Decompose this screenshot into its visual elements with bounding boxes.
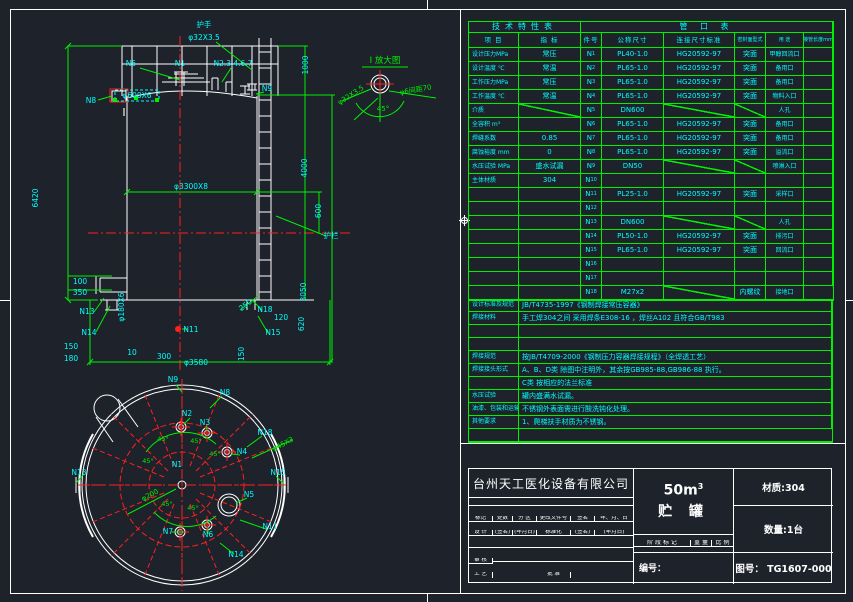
dim-total-height: 6420 bbox=[31, 188, 40, 207]
tech-item-label: 焊缝系数 bbox=[469, 132, 519, 146]
dim-200: φ200 bbox=[140, 487, 160, 503]
stage-mark-label: 阶 段 标 记 bbox=[634, 540, 691, 547]
titleblock-cell: (年月日) bbox=[513, 530, 537, 537]
nozzle-size: PL65-1.0 bbox=[602, 146, 664, 160]
note-text bbox=[519, 325, 832, 338]
note-text: C类 按相应的法兰标准 bbox=[519, 377, 832, 390]
grip-handle[interactable] bbox=[113, 98, 117, 102]
nozzle-use: 备用口 bbox=[766, 62, 804, 76]
note-text: A、B、D类 除图中注明外，其余按GB985-88,GB986-88 执行。 bbox=[519, 364, 832, 377]
detail-angle: 45° bbox=[377, 105, 389, 113]
label-n18-front: N18 bbox=[257, 305, 272, 314]
label-n1-front: N1 bbox=[175, 59, 186, 68]
titleblock-cell: 工 艺 bbox=[469, 572, 493, 578]
label-n8-front: N8 bbox=[86, 96, 97, 105]
tech-item-value: 0.85 bbox=[519, 132, 581, 146]
nozzle-no: N4 bbox=[581, 90, 602, 104]
label-guardrail: 护栏 bbox=[324, 230, 339, 240]
dim-bottom-dia: φ3580 bbox=[184, 358, 208, 367]
note-text: JB/T4735-1997《钢制焊接常压容器》 bbox=[519, 299, 832, 312]
nozzle-face bbox=[735, 272, 766, 286]
nozzle-length bbox=[804, 48, 833, 62]
nozzle-no: N10 bbox=[581, 174, 602, 188]
nozzle-header-4: 用 途 bbox=[766, 33, 804, 48]
front-view-tank bbox=[96, 38, 314, 310]
nozzle-length bbox=[804, 272, 833, 286]
dim-shell: φ3300X8 bbox=[174, 182, 208, 191]
titleblock-cell bbox=[595, 547, 633, 548]
label-n11-front: N11 bbox=[183, 325, 198, 334]
label-n5-front: N5 bbox=[126, 59, 137, 68]
nozzle-use: 喷淋入口 bbox=[766, 160, 804, 174]
nozzle-use: 人孔 bbox=[766, 104, 804, 118]
nozzle-face: 突面 bbox=[735, 132, 766, 146]
tech-item-label bbox=[469, 286, 519, 300]
tech-item-value bbox=[519, 230, 581, 244]
titleblock-cell bbox=[571, 505, 595, 506]
nozzle-std bbox=[664, 160, 735, 174]
nozzle-std bbox=[664, 216, 735, 230]
note-text bbox=[519, 429, 832, 442]
dim-600x6-selected: φ600X6 bbox=[122, 91, 151, 100]
nozzle-no: N11 bbox=[581, 188, 602, 202]
nozzle-header-3: 密封面型式 bbox=[735, 33, 766, 48]
nozzle-size bbox=[602, 258, 664, 272]
nozzle-size: PL25-1.0 bbox=[602, 188, 664, 202]
nozzle-face: 突面 bbox=[735, 62, 766, 76]
nozzle-length bbox=[804, 160, 833, 174]
tech-item-label: 全容积 m³ bbox=[469, 118, 519, 132]
nozzle-use: 备用口 bbox=[766, 132, 804, 146]
nozzle-length bbox=[804, 286, 833, 300]
titleblock-cell: 标准化 bbox=[537, 530, 571, 537]
drawing-number: 图号： TG1607-000 bbox=[734, 553, 833, 582]
titleblock-cell: 标记 bbox=[469, 516, 493, 523]
nozzle-std bbox=[664, 104, 735, 118]
capacity-sup: 3 bbox=[698, 482, 704, 491]
dim-1000: 1000 bbox=[301, 55, 310, 74]
titleblock-cell bbox=[595, 505, 633, 506]
nozzle-header-2: 连接尺寸标准 bbox=[664, 33, 735, 48]
note-text: 按JB/T4709-2000《钢制压力容器焊接规程》（全焊透工艺） bbox=[519, 351, 832, 364]
nozzle-use: 物料入口 bbox=[766, 90, 804, 104]
titleblock-cell: (签名) bbox=[493, 530, 513, 537]
note-text: 罐内盛满水试漏。 bbox=[519, 390, 832, 403]
titleblock-cell bbox=[469, 547, 493, 548]
tech-table-title: 技术特性表 bbox=[469, 22, 581, 33]
titleblock-cell bbox=[595, 561, 633, 562]
nozzle-std: HG20592-97 bbox=[664, 146, 735, 160]
tech-item-value bbox=[519, 104, 581, 118]
nozzle-face bbox=[735, 174, 766, 188]
nozzle-size: M27x2 bbox=[602, 286, 664, 300]
titleblock-cell bbox=[513, 547, 537, 548]
nozzle-use: 溢流口 bbox=[766, 146, 804, 160]
drawing-views: 护手φ32X3.5N5N1N2.3.4.6.7N9N8Ⅰφ600X6100040… bbox=[0, 0, 460, 602]
nozzle-face bbox=[735, 160, 766, 174]
label-n3-plan: N3 bbox=[200, 418, 211, 427]
note-text bbox=[519, 338, 832, 351]
nozzle-length bbox=[804, 230, 833, 244]
serial-label: 编号： bbox=[634, 553, 733, 582]
note-label: 油漆、包装和运输 bbox=[469, 403, 519, 416]
titleblock-cell bbox=[537, 561, 571, 562]
nozzle-length bbox=[804, 132, 833, 146]
tech-item-label bbox=[469, 272, 519, 286]
nozzle-std: HG20592-97 bbox=[664, 62, 735, 76]
nozzle-std: HG20592-97 bbox=[664, 48, 735, 62]
nozzle-size bbox=[602, 174, 664, 188]
nozzle-length bbox=[804, 104, 833, 118]
nozzle-use: 排污口 bbox=[766, 230, 804, 244]
label-n13-front: N13 bbox=[79, 307, 94, 316]
nozzle-face: 突面 bbox=[735, 244, 766, 258]
tech-item-value bbox=[519, 188, 581, 202]
note-label bbox=[469, 429, 519, 442]
nozzle-std: HG20592-97 bbox=[664, 188, 735, 202]
nozzle-size: PL65-1.0 bbox=[602, 132, 664, 146]
titleblock-top-line bbox=[460, 443, 846, 444]
nozzle-size: PL65-1.0 bbox=[602, 90, 664, 104]
tech-item-label: 介质 bbox=[469, 104, 519, 118]
label-n15-plan: N15 bbox=[270, 468, 285, 477]
tech-item-value bbox=[519, 202, 581, 216]
nozzle-use: 采样口 bbox=[766, 188, 804, 202]
detail-title: Ⅰ 放大图 bbox=[370, 55, 401, 66]
nozzle-face: 突面 bbox=[735, 230, 766, 244]
angle-45-a: 45° bbox=[157, 435, 169, 443]
centering-mark-right bbox=[846, 300, 853, 301]
titleblock-cell bbox=[493, 547, 513, 548]
titleblock-cell bbox=[493, 561, 513, 562]
nozzle-no: N2 bbox=[581, 62, 602, 76]
nozzle-no: N14 bbox=[581, 230, 602, 244]
nozzle-use: 接地口 bbox=[766, 286, 804, 300]
label-n4-plan: N4 bbox=[237, 447, 248, 456]
tech-header-1: 指 标 bbox=[519, 33, 581, 48]
nozzle-no: N6 bbox=[581, 118, 602, 132]
product-title: 50m3 贮 罐 bbox=[634, 469, 733, 534]
nozzle-header-0: 件号 bbox=[581, 33, 602, 48]
nozzle-size: PL65-1.0 bbox=[602, 62, 664, 76]
label-n1-plan: N1 bbox=[172, 460, 183, 469]
nozzle-no: N15 bbox=[581, 244, 602, 258]
nozzle-size: PL50-1.0 bbox=[602, 230, 664, 244]
note-label: 其他要求 bbox=[469, 416, 519, 429]
tech-item-label: 主体材质 bbox=[469, 174, 519, 188]
tech-item-value: 常温 bbox=[519, 62, 581, 76]
nozzle-length bbox=[804, 216, 833, 230]
nozzle-no: N18 bbox=[581, 286, 602, 300]
notes-table: 设计标准及规范JB/T4735-1997《钢制焊接常压容器》焊接材料手工焊304… bbox=[468, 299, 833, 443]
capacity-value: 50m bbox=[664, 483, 698, 499]
scale-label: 比 例 bbox=[712, 540, 733, 547]
nozzle-size: PL40-1.0 bbox=[602, 48, 664, 62]
stage-row: 阶 段 标 记 重 量 比 例 bbox=[634, 534, 733, 553]
dim-180x6: φ180X6 bbox=[117, 292, 126, 321]
tech-item-label bbox=[469, 244, 519, 258]
angle-45-c: 45° bbox=[209, 450, 221, 458]
nozzle-use: 人孔 bbox=[766, 216, 804, 230]
nozzle-face: 突面 bbox=[735, 76, 766, 90]
label-n8-plan: N8 bbox=[220, 388, 231, 397]
nozzle-use bbox=[766, 202, 804, 216]
titleblock-cell bbox=[493, 505, 513, 506]
tech-item-label bbox=[469, 230, 519, 244]
tech-item-label: 设计压力MPa bbox=[469, 48, 519, 62]
tech-item-value: 0 bbox=[519, 146, 581, 160]
revision-grid: 标记处数分 区更改文件号签名年、月、日设 计(签名)(年月日)标准化(签名)(年… bbox=[469, 498, 633, 582]
tech-item-label: 工作压力MPa bbox=[469, 76, 519, 90]
tech-item-label bbox=[469, 188, 519, 202]
nozzle-size: DN600 bbox=[602, 104, 664, 118]
nozzle-face: 内螺纹 bbox=[735, 286, 766, 300]
nozzle-std: HG20592-97 bbox=[664, 90, 735, 104]
titleblock-cell bbox=[469, 505, 493, 506]
label-n2-plan: N2 bbox=[182, 409, 193, 418]
product-name: 贮 罐 bbox=[658, 501, 709, 521]
tech-item-value: 常温 bbox=[519, 90, 581, 104]
note-label: 水压试验 bbox=[469, 390, 519, 403]
weight-label: 重 量 bbox=[691, 540, 712, 547]
note-label bbox=[469, 377, 519, 390]
titleblock-cell: 审 核 bbox=[469, 558, 493, 565]
note-text: 1、爬梯扶手材质为不锈钢。 bbox=[519, 416, 832, 429]
tech-item-value: 常压 bbox=[519, 76, 581, 90]
quantity-value: 数量:1台 bbox=[734, 506, 833, 553]
nozzle-length bbox=[804, 244, 833, 258]
tech-item-value bbox=[519, 258, 581, 272]
title-block: 台州天工医化设备有限公司 标记处数分 区更改文件号签名年、月、日设 计(签名)(… bbox=[468, 468, 832, 583]
nozzle-use: 备用口 bbox=[766, 118, 804, 132]
note-label: 焊接材料 bbox=[469, 312, 519, 325]
dim-150-left: 150 bbox=[64, 342, 79, 351]
tech-item-value bbox=[519, 272, 581, 286]
dim-3050: 3050 bbox=[299, 282, 308, 301]
dim-250: 250 bbox=[237, 297, 254, 313]
nozzle-face bbox=[735, 202, 766, 216]
nozzle-no: N16 bbox=[581, 258, 602, 272]
nozzle-std bbox=[664, 286, 735, 300]
note-label bbox=[469, 338, 519, 351]
nozzle-length bbox=[804, 146, 833, 160]
nozzle-std: HG20592-97 bbox=[664, 132, 735, 146]
grip-handle[interactable] bbox=[155, 98, 159, 102]
nozzle-no: N3 bbox=[581, 76, 602, 90]
nozzle-use bbox=[766, 174, 804, 188]
nozzle-face bbox=[735, 216, 766, 230]
nozzle-no: N5 bbox=[581, 104, 602, 118]
nozzle-face: 突面 bbox=[735, 188, 766, 202]
nozzle-length bbox=[804, 76, 833, 90]
note-text: 不锈钢外表面需进行酸洗钝化处理。 bbox=[519, 403, 832, 416]
company-name: 台州天工医化设备有限公司 bbox=[469, 469, 633, 498]
label-n14-front: N14 bbox=[81, 328, 96, 337]
nozzle-std bbox=[664, 174, 735, 188]
dim-180-left: 180 bbox=[64, 354, 79, 363]
titleblock-cell: (年月日) bbox=[595, 530, 633, 537]
tech-item-value bbox=[519, 244, 581, 258]
dim-120: 120 bbox=[274, 313, 289, 322]
nozzle-use: 备用口 bbox=[766, 76, 804, 90]
titleblock-cell bbox=[571, 547, 595, 548]
nozzle-std bbox=[664, 202, 735, 216]
titleblock-cell: 年、月、日 bbox=[595, 516, 633, 523]
nozzle-size: PL65-1.0 bbox=[602, 118, 664, 132]
tech-item-value bbox=[519, 118, 581, 132]
nozzle-face: 突面 bbox=[735, 90, 766, 104]
label-n9-plan: N9 bbox=[168, 375, 179, 384]
nozzle-size: DN600 bbox=[602, 216, 664, 230]
angle-45-f: 45° bbox=[142, 457, 154, 465]
dim-45x3: φ45X3 bbox=[271, 435, 295, 453]
nozzle-size bbox=[602, 202, 664, 216]
titleblock-cell: 更改文件号 bbox=[537, 516, 571, 523]
detail-dim-pipe: φ32X3.5 bbox=[336, 84, 365, 107]
nozzle-use: 甲醇回流口 bbox=[766, 48, 804, 62]
nozzle-std bbox=[664, 258, 735, 272]
nozzle-size: PL65-1.0 bbox=[602, 244, 664, 258]
nozzle-std: HG20592-97 bbox=[664, 230, 735, 244]
nozzle-use bbox=[766, 258, 804, 272]
tech-item-label: 腐蚀裕度 mm bbox=[469, 146, 519, 160]
nozzle-no: N13 bbox=[581, 216, 602, 230]
tech-item-label: 工作温度 ℃ bbox=[469, 90, 519, 104]
tech-item-label bbox=[469, 258, 519, 272]
label-n15-front: N15 bbox=[265, 328, 280, 337]
label-n6-plan: N6 bbox=[203, 530, 214, 539]
dim-620: 620 bbox=[297, 317, 306, 332]
nozzle-length bbox=[804, 202, 833, 216]
nozzle-length bbox=[804, 118, 833, 132]
tech-item-label bbox=[469, 202, 519, 216]
angle-45-b: 45° bbox=[190, 437, 202, 445]
note-label: 焊接规范 bbox=[469, 351, 519, 364]
nozzle-table-title: 管 口 表 bbox=[581, 22, 833, 33]
titleblock-cell bbox=[537, 505, 571, 506]
note-text: 手工焊304之间 采用焊条E308-16 ，焊丝A102 且符合GB/T983 bbox=[519, 312, 832, 325]
nozzle-length bbox=[804, 174, 833, 188]
material-value: 材质:304 bbox=[734, 469, 833, 506]
dim-600: 600 bbox=[314, 204, 323, 219]
tech-and-nozzle-table: 技术特性表管 口 表项 目指 标件号公称尺寸连接尺寸标准密封面型式用 途接管长度… bbox=[468, 21, 834, 301]
label-n5-plan: N5 bbox=[244, 490, 255, 499]
tech-item-value: 304 bbox=[519, 174, 581, 188]
nozzle-no: N12 bbox=[581, 202, 602, 216]
nozzle-no: N8 bbox=[581, 146, 602, 160]
tech-item-value bbox=[519, 286, 581, 300]
nozzle-face: 突面 bbox=[735, 48, 766, 62]
titleblock-cell bbox=[513, 561, 537, 562]
angle-45-d: 45° bbox=[161, 500, 173, 508]
nozzle-no: N17 bbox=[581, 272, 602, 286]
front-view-dimensions bbox=[65, 42, 335, 365]
section-mark-I: Ⅰ bbox=[122, 106, 125, 119]
note-label: 焊接接头形式 bbox=[469, 364, 519, 377]
nozzle-no: N1 bbox=[581, 48, 602, 62]
angle-45-e: 45° bbox=[187, 504, 199, 512]
titleblock-cell bbox=[513, 505, 537, 506]
nozzle-use bbox=[766, 272, 804, 286]
title-block-middle: 50m3 贮 罐 阶 段 标 记 重 量 比 例 编号： bbox=[633, 469, 733, 584]
nozzle-use: 回流口 bbox=[766, 244, 804, 258]
titleblock-cell: 签名 bbox=[571, 516, 595, 523]
note-label bbox=[469, 325, 519, 338]
nozzle-face bbox=[735, 258, 766, 272]
nozzle-face: 突面 bbox=[735, 118, 766, 132]
dim-handrail-size: φ32X3.5 bbox=[188, 33, 220, 42]
tech-header-0: 项 目 bbox=[469, 33, 519, 48]
titleblock-cell: 处数 bbox=[493, 516, 513, 523]
nozzle-face bbox=[735, 104, 766, 118]
nozzle-std: HG20592-97 bbox=[664, 118, 735, 132]
title-block-right: 材质:304 数量:1台 图号： TG1607-000 bbox=[733, 469, 833, 584]
nozzle-length bbox=[804, 188, 833, 202]
label-n14-plan: N14 bbox=[228, 550, 243, 559]
tech-item-label: 水压试验 MPa bbox=[469, 160, 519, 174]
label-n11-plan: N11 bbox=[262, 522, 277, 531]
label-n9-front: N9 bbox=[262, 84, 273, 93]
label-n18-plan: N18 bbox=[257, 428, 272, 437]
titleblock-cell bbox=[571, 561, 595, 562]
nozzle-no: N7 bbox=[581, 132, 602, 146]
nozzle-std: HG20592-97 bbox=[664, 76, 735, 90]
nozzle-size: PL65-1.0 bbox=[602, 76, 664, 90]
tech-item-value: 常压 bbox=[519, 48, 581, 62]
nozzle-std bbox=[664, 272, 735, 286]
nozzle-length bbox=[804, 258, 833, 272]
dim-150-right: 150 bbox=[237, 347, 246, 362]
dim-300: 300 bbox=[157, 352, 172, 361]
titleblock-cell bbox=[537, 547, 571, 548]
dim-4000: 4000 bbox=[300, 158, 309, 177]
nozzle-std: HG20592-97 bbox=[664, 244, 735, 258]
dim-350: 350 bbox=[73, 288, 88, 297]
label-nozzle-group: N2.3.4.6.7 bbox=[213, 59, 252, 68]
label-n7-plan: N7 bbox=[163, 527, 174, 536]
table-divider-line bbox=[460, 9, 461, 594]
dim-100: 100 bbox=[73, 277, 88, 286]
dim-10: 10 bbox=[127, 348, 137, 357]
note-label: 设计标准及规范 bbox=[469, 299, 519, 312]
tech-item-value: 盛水试漏 bbox=[519, 160, 581, 174]
nozzle-face: 突面 bbox=[735, 146, 766, 160]
nozzle-length bbox=[804, 90, 833, 104]
drawing-text-layer: 护手φ32X3.5N5N1N2.3.4.6.7N9N8Ⅰφ600X6100040… bbox=[31, 19, 432, 559]
nozzle-no: N9 bbox=[581, 160, 602, 174]
tech-item-label bbox=[469, 216, 519, 230]
tech-item-value bbox=[519, 216, 581, 230]
titleblock-cell: 分 区 bbox=[513, 516, 537, 523]
titleblock-cell: (签名) bbox=[571, 530, 595, 537]
tech-item-label: 设计温度 ℃ bbox=[469, 62, 519, 76]
titleblock-cell: 批 准 bbox=[537, 572, 571, 578]
nozzle-header-5: 接管长度mm bbox=[804, 33, 833, 48]
nozzle-size: DN50 bbox=[602, 160, 664, 174]
nozzle-length bbox=[804, 62, 833, 76]
nozzle-header-1: 公称尺寸 bbox=[602, 33, 664, 48]
titleblock-cell: 设 计 bbox=[469, 530, 493, 537]
label-handrail: 护手 bbox=[197, 19, 212, 29]
nozzle-size bbox=[602, 272, 664, 286]
label-n13-plan: N13 bbox=[71, 468, 86, 477]
